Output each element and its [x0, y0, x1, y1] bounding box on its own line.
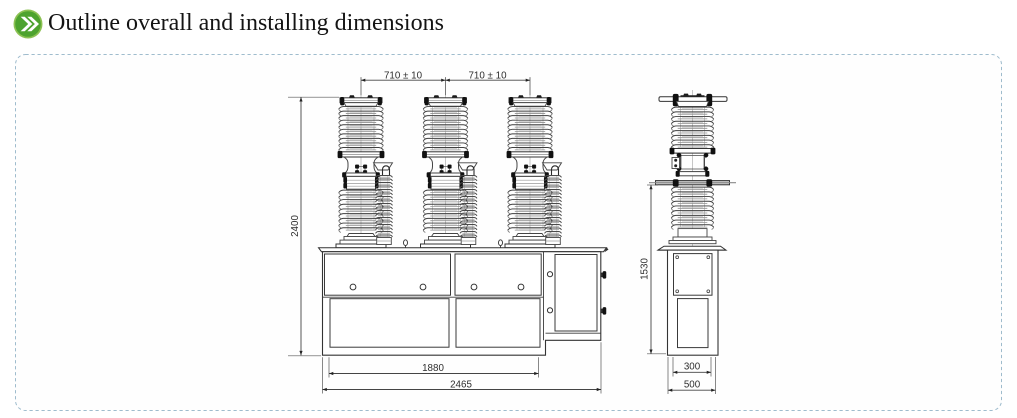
svg-text:300: 300	[684, 361, 701, 372]
svg-text:710 ± 10: 710 ± 10	[384, 70, 423, 81]
svg-text:500: 500	[684, 379, 701, 390]
svg-text:2465: 2465	[450, 379, 472, 390]
svg-text:1880: 1880	[422, 363, 444, 374]
svg-text:710 ± 10: 710 ± 10	[468, 70, 507, 81]
svg-text:1530: 1530	[640, 258, 651, 280]
svg-text:2400: 2400	[290, 215, 301, 237]
